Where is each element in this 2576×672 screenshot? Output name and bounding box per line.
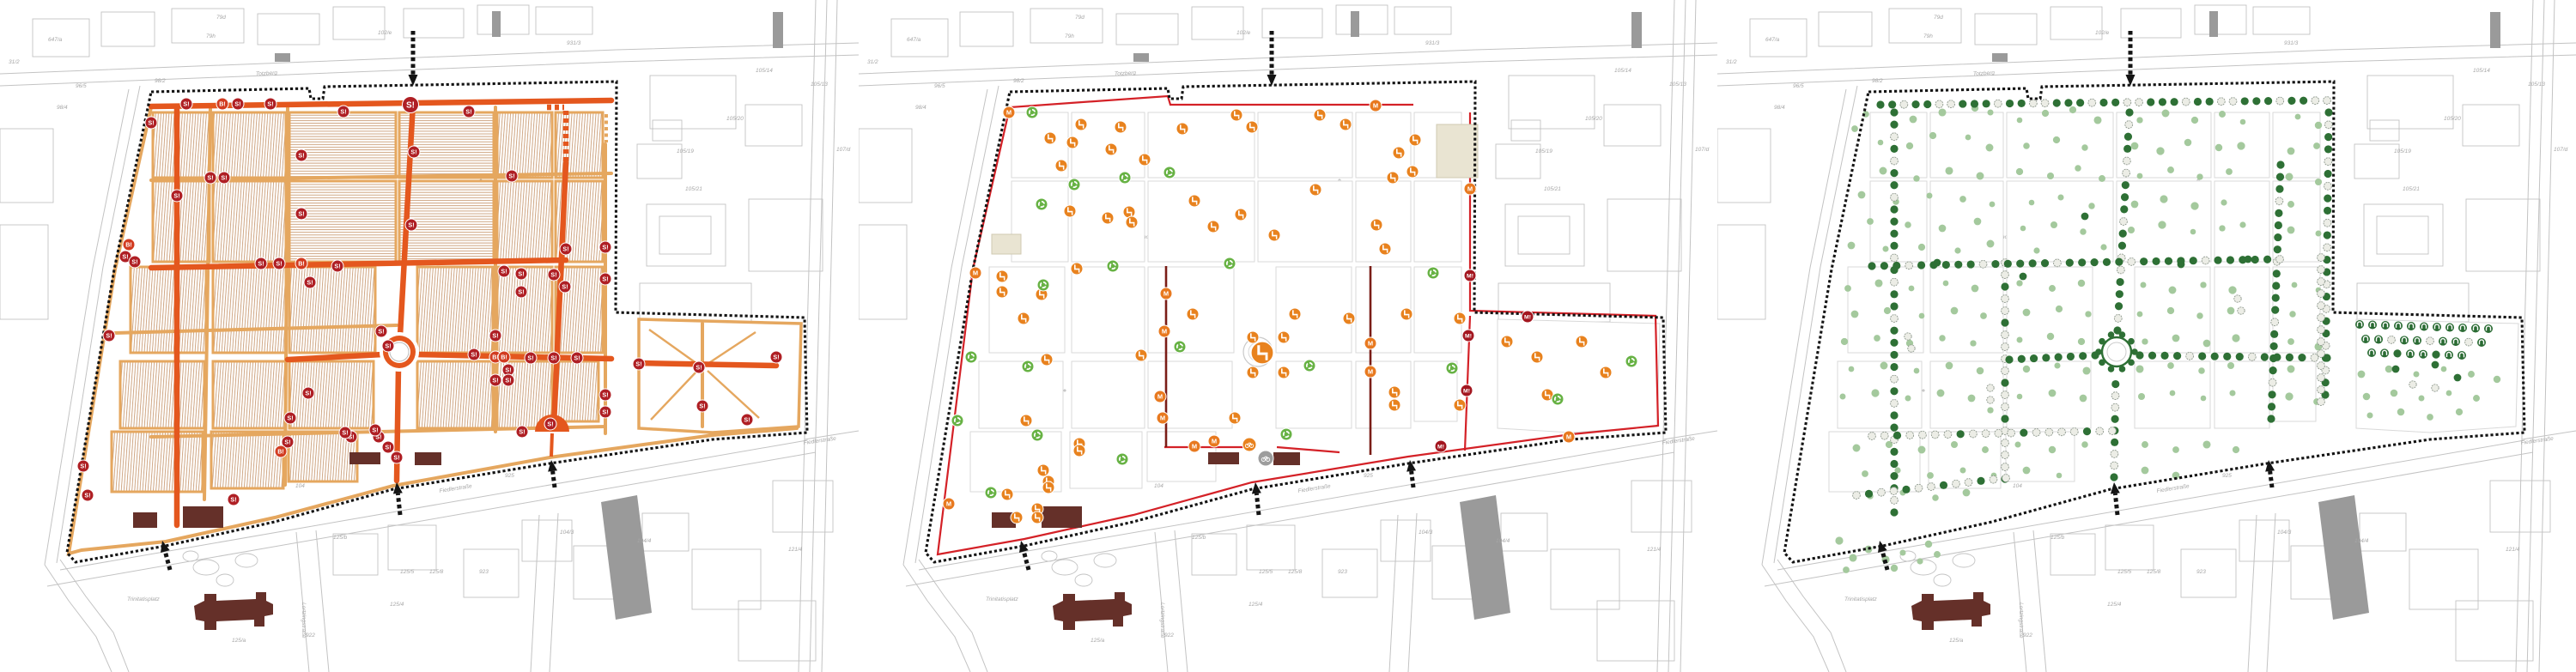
tree-dot-light bbox=[1945, 166, 1953, 174]
map-label: 931/3 bbox=[567, 40, 581, 46]
tree-dot-light bbox=[2226, 168, 2233, 175]
map-label: 105/14 bbox=[2473, 68, 2490, 74]
parcel-outline bbox=[1322, 549, 1377, 597]
tree-dot-pale bbox=[1891, 496, 1899, 504]
tree-dot-light bbox=[2239, 221, 2245, 227]
tree-dot-pale bbox=[2111, 462, 2118, 469]
svg-text:S!: S! bbox=[602, 275, 608, 283]
tree-dot-dark bbox=[1890, 169, 1898, 177]
tree-dot-light bbox=[1867, 218, 1874, 225]
tree-dot-dark bbox=[2324, 231, 2331, 239]
street-line bbox=[316, 530, 329, 672]
tree-dot-dark bbox=[2066, 259, 2074, 267]
map-label: 96/5 bbox=[1793, 83, 1804, 89]
tree-dot-light bbox=[2200, 282, 2206, 288]
tree-dot-dark bbox=[2076, 99, 2084, 106]
tree-dot-pale bbox=[2465, 338, 2473, 346]
waste-marker bbox=[1446, 362, 1458, 374]
annex-field bbox=[639, 319, 801, 433]
grave-field bbox=[213, 181, 286, 262]
tree-dot-light bbox=[1934, 551, 1941, 558]
svg-text:S!: S! bbox=[183, 100, 189, 108]
pond-outline bbox=[1094, 554, 1116, 567]
svg-text:S!: S! bbox=[267, 100, 273, 108]
tree-dot-pale bbox=[1880, 432, 1888, 439]
tree-dot-light bbox=[2167, 307, 2174, 314]
tree-dot-light bbox=[2056, 306, 2063, 312]
tree-dot-dark bbox=[2124, 133, 2132, 141]
tree-dot-light bbox=[2016, 168, 2023, 175]
tree-dot-pale bbox=[2318, 362, 2325, 370]
parcel-outline bbox=[1116, 14, 1178, 45]
grave-field bbox=[556, 112, 603, 178]
tree-dot-light bbox=[2057, 473, 2063, 479]
tree-dot-light bbox=[1927, 193, 1933, 199]
pond-outline bbox=[183, 551, 198, 561]
tree-dot-dark bbox=[2117, 278, 2124, 286]
map-label: 79d bbox=[1075, 15, 1084, 21]
pond-outline bbox=[193, 560, 219, 575]
tree-dot-light bbox=[2138, 393, 2145, 400]
tree-dot-light bbox=[2228, 286, 2236, 294]
tree-dot-pale bbox=[1987, 384, 1994, 391]
map-label: Fiedlerstraße bbox=[439, 483, 472, 494]
tree-dot-pale bbox=[2318, 254, 2325, 262]
tree-dot-light bbox=[2023, 142, 2030, 149]
tree-dot-dark bbox=[1991, 260, 1999, 268]
tree-dot-pale bbox=[1891, 157, 1899, 165]
map-label: 98/2 bbox=[1872, 78, 1883, 84]
svg-text:S!: S! bbox=[221, 174, 227, 182]
tree-dot-dark bbox=[2111, 99, 2119, 106]
svg-text:M: M bbox=[1368, 368, 1373, 376]
tree-dot-light bbox=[1880, 167, 1887, 175]
tree-dot-light bbox=[2419, 396, 2425, 402]
map-label: 125/b bbox=[2050, 535, 2065, 541]
parcel-outline bbox=[1607, 199, 1681, 271]
map-label: 104/3 bbox=[2277, 530, 2292, 536]
tree-dot-light bbox=[1965, 135, 1971, 141]
tree-dot-pale bbox=[2324, 158, 2332, 166]
map-label: 923 bbox=[1338, 569, 1347, 575]
map-label: 98/2 bbox=[1013, 78, 1024, 84]
tree-dot-pale bbox=[1905, 262, 1913, 269]
map-label: 107/d bbox=[836, 147, 851, 153]
grave-field bbox=[289, 267, 375, 353]
map-label: 98/2 bbox=[155, 78, 166, 84]
building bbox=[349, 452, 380, 464]
parcel-outline bbox=[2253, 7, 2310, 34]
parcel-outline bbox=[101, 12, 155, 46]
grave-field bbox=[2215, 361, 2269, 428]
tree-dot-dark bbox=[1890, 181, 1898, 189]
tree-dot-dark bbox=[2269, 366, 2276, 374]
tree-dot-light bbox=[2050, 221, 2057, 228]
tree-dot-dark bbox=[2123, 145, 2131, 153]
tree-dot-light bbox=[2136, 365, 2143, 372]
svg-text:S!: S! bbox=[602, 409, 608, 416]
tree-dot-dark bbox=[2115, 258, 2123, 266]
tree-dot-light bbox=[2033, 247, 2039, 253]
tree-dot-pale bbox=[2388, 336, 2396, 343]
grave-fields bbox=[970, 112, 1660, 492]
tree-dot-dark bbox=[2206, 98, 2214, 106]
grave-field bbox=[153, 112, 210, 178]
map-label: Totzberg bbox=[1973, 70, 1996, 77]
parcel-outline bbox=[1496, 144, 1540, 179]
tree-dot-pale bbox=[1965, 479, 1972, 487]
tree-dot-light bbox=[1874, 279, 1882, 287]
street-line bbox=[2267, 513, 2275, 672]
tree-dot-pale bbox=[2238, 307, 2245, 314]
pond-outline bbox=[1953, 554, 1975, 567]
svg-text:S!: S! bbox=[148, 119, 154, 127]
tree-dot-light bbox=[2468, 371, 2475, 378]
grave-field bbox=[131, 267, 206, 353]
tree-dot-light bbox=[1858, 191, 1866, 199]
tree-dot-light bbox=[2131, 142, 2139, 150]
tree-dot-dark bbox=[2111, 415, 2119, 423]
map-label: 121/4 bbox=[1647, 547, 1662, 553]
parcel-outline bbox=[522, 520, 572, 561]
svg-text:M: M bbox=[1373, 102, 1378, 110]
tree-dot-light bbox=[2142, 338, 2148, 344]
tree-dot-dark bbox=[2147, 98, 2154, 106]
svg-text:M: M bbox=[1160, 415, 1165, 422]
tree-dot-dark bbox=[2152, 257, 2160, 265]
tree-dot-pale bbox=[2276, 256, 2284, 263]
grave-field bbox=[289, 112, 396, 178]
svg-text:M: M bbox=[1467, 185, 1473, 193]
tree-dot-pale bbox=[2070, 428, 2078, 436]
tree-dot-light bbox=[2414, 372, 2420, 378]
tree-dot-dark bbox=[1942, 261, 1950, 269]
tree-dot-light bbox=[1954, 247, 1960, 253]
tree-dot-pale bbox=[2276, 97, 2284, 105]
tree-dot-dark bbox=[2251, 256, 2259, 263]
tree-dot-dark bbox=[1865, 490, 1873, 498]
tree-dot-light bbox=[2075, 165, 2081, 171]
tree-dot-pale bbox=[1905, 333, 1911, 340]
map-label: 102/e bbox=[2095, 30, 2110, 36]
svg-text:S!: S! bbox=[550, 354, 556, 362]
street-line bbox=[1389, 515, 1398, 672]
tree-dot-light bbox=[2287, 366, 2295, 373]
svg-text:S!: S! bbox=[378, 328, 384, 336]
tree-dot-light bbox=[2160, 195, 2167, 203]
tree-dot-dark bbox=[2016, 259, 2024, 267]
map-label: 79h bbox=[1923, 33, 1933, 39]
svg-text:S!: S! bbox=[602, 244, 608, 251]
svg-text:S!: S! bbox=[173, 192, 179, 200]
tree-dot-light bbox=[2017, 337, 2023, 343]
tree-dot-light bbox=[2219, 111, 2226, 118]
grave-field bbox=[211, 432, 283, 488]
tree-dot-dark bbox=[2454, 374, 2462, 382]
tree-dot-dark bbox=[2227, 256, 2234, 263]
svg-text:S!: S! bbox=[562, 283, 568, 291]
tree-dot-dark bbox=[2001, 415, 2008, 422]
tree-dot-light bbox=[2287, 148, 2295, 155]
tree-dot-light bbox=[2286, 173, 2293, 181]
building bbox=[415, 452, 441, 465]
tree-dot-light bbox=[2385, 366, 2393, 373]
grave-field bbox=[1148, 181, 1255, 262]
tree-dot-light bbox=[1905, 221, 1911, 228]
tree-dot-dark bbox=[2090, 258, 2098, 266]
tree-dot-pale bbox=[2002, 475, 2010, 482]
tree-dot-light bbox=[2023, 366, 2030, 372]
tree-dot-light bbox=[1849, 366, 1855, 372]
tree-dot-dark bbox=[2268, 390, 2275, 398]
parcel-outline bbox=[2377, 216, 2428, 254]
parcel-outline bbox=[1247, 525, 1295, 570]
parcel-outline bbox=[0, 225, 48, 319]
map-label: 104/4 bbox=[1496, 538, 1510, 544]
parcel-outline bbox=[1498, 283, 1610, 322]
svg-text:S!: S! bbox=[385, 342, 391, 350]
map-label: 98/4 bbox=[915, 105, 927, 111]
tree-dot-light bbox=[2215, 144, 2222, 151]
map-label: Fiedlerstraße bbox=[2156, 483, 2190, 494]
tree-dot-dark bbox=[2115, 302, 2123, 310]
tree-dot-light bbox=[1968, 395, 1976, 403]
tree-dot-dark bbox=[2264, 97, 2272, 105]
tree-dot-dark bbox=[2121, 193, 2129, 201]
parcel-outline bbox=[2367, 76, 2453, 129]
tree-dot-light bbox=[2203, 340, 2211, 348]
map-label: 31/2 bbox=[9, 59, 20, 65]
grave-field bbox=[1147, 432, 1216, 481]
parcel-outline bbox=[1505, 204, 1584, 266]
tree-dot-light bbox=[2057, 194, 2063, 200]
tree-dot-dark bbox=[1868, 262, 1875, 269]
tree-dot-pale bbox=[2318, 302, 2325, 310]
grave-field bbox=[112, 432, 203, 492]
tree-dot-light bbox=[2190, 202, 2198, 209]
svg-text:S!: S! bbox=[106, 332, 112, 340]
grave-field bbox=[213, 267, 286, 353]
map-label: 125/8 bbox=[429, 569, 444, 575]
tree-dot-pale bbox=[1982, 430, 1990, 438]
svg-text:B!: B! bbox=[298, 260, 305, 268]
map-label: Totzberg bbox=[256, 70, 278, 77]
tree-dot-dark bbox=[2083, 427, 2091, 435]
tree-dot-pale bbox=[2002, 331, 2009, 339]
tree-dot-dark bbox=[1977, 477, 1984, 485]
tree-dot-light bbox=[2020, 226, 2026, 232]
waste-marker bbox=[1026, 106, 1038, 118]
tree-dot-pale bbox=[2275, 197, 2283, 205]
svg-text:M: M bbox=[946, 500, 951, 508]
svg-text:S!: S! bbox=[518, 288, 524, 296]
map-label: 104/3 bbox=[560, 530, 574, 536]
parcel-outline bbox=[477, 5, 529, 34]
tree-dot-pale bbox=[2117, 266, 2124, 274]
svg-text:S!: S! bbox=[410, 148, 416, 156]
tree-dot-dark bbox=[1890, 108, 1898, 116]
grey-building bbox=[1631, 12, 1642, 48]
map-label: 79d bbox=[216, 15, 226, 21]
svg-text:S!: S! bbox=[699, 403, 705, 410]
tree-dot-dark bbox=[1967, 260, 1975, 268]
tree-dot-light bbox=[1843, 566, 1850, 573]
tree-dot-pale bbox=[1900, 100, 1908, 108]
tree-dot-pale bbox=[2318, 386, 2325, 394]
tree-dot-dark bbox=[2041, 259, 2049, 267]
parcel-outline bbox=[2357, 283, 2469, 322]
street-line bbox=[60, 560, 129, 672]
tree-dot-light bbox=[2141, 282, 2147, 288]
map-label: 105/13 bbox=[1669, 82, 1686, 88]
tree-dot-dark bbox=[1890, 290, 1898, 298]
tree-dot-dark bbox=[1876, 100, 1884, 108]
tree-dot-light bbox=[2221, 199, 2227, 205]
tree-dot-light bbox=[2363, 393, 2371, 401]
tree-dot-dark bbox=[2111, 380, 2119, 388]
parcel-outline bbox=[1394, 7, 1451, 34]
map-label: 105/20 bbox=[726, 116, 744, 122]
grey-building bbox=[1992, 53, 2008, 62]
entrance-arrow-stem bbox=[2115, 493, 2117, 515]
waste-marker bbox=[951, 415, 963, 427]
tree-dot-dark bbox=[1929, 261, 1937, 269]
grave-field bbox=[1829, 432, 1920, 492]
map-label: 125/a bbox=[1091, 638, 1105, 644]
tree-dot-pale bbox=[2002, 307, 2009, 315]
tree-dot-light bbox=[1899, 549, 1905, 555]
grey-building bbox=[601, 495, 652, 620]
tree-dot-light bbox=[2285, 392, 2293, 400]
parcel-outline bbox=[2456, 601, 2533, 661]
tree-dot-light bbox=[2227, 362, 2234, 369]
survey-dot bbox=[1923, 390, 1924, 391]
street-line bbox=[1717, 55, 2576, 86]
tree-dot-dark bbox=[2324, 133, 2332, 141]
grave-field bbox=[289, 181, 396, 262]
grave-field bbox=[289, 361, 374, 428]
tree-dot-pale bbox=[2318, 290, 2325, 298]
parcel-outline bbox=[1819, 12, 1872, 46]
tree-dot-dark bbox=[2018, 355, 2026, 363]
svg-text:M: M bbox=[1157, 393, 1163, 401]
tree-dot-pale bbox=[1953, 480, 1960, 487]
map-label: 105/20 bbox=[2444, 116, 2461, 122]
tree-dot-light bbox=[1849, 554, 1856, 561]
tree-dot-pale bbox=[1990, 475, 1997, 483]
parcel-outline bbox=[859, 225, 907, 319]
map-label: 105/21 bbox=[685, 186, 702, 192]
tree-dot-dark bbox=[2324, 207, 2331, 215]
tree-dot-light bbox=[2081, 144, 2087, 150]
tree-dot-dark bbox=[2198, 352, 2206, 360]
grave-field bbox=[1870, 181, 1927, 262]
tree-dot-dark bbox=[2273, 269, 2281, 277]
svg-text:M: M bbox=[1163, 290, 1169, 298]
grey-building bbox=[2209, 11, 2218, 37]
tree-dot-pale bbox=[2234, 295, 2241, 302]
tree-dot-dark bbox=[1890, 363, 1898, 371]
building bbox=[183, 506, 223, 528]
map-label: 125/4 bbox=[2107, 602, 2122, 608]
svg-text:S!: S! bbox=[602, 391, 608, 399]
svg-text:S!: S! bbox=[773, 354, 779, 361]
survey-dot bbox=[1064, 390, 1066, 391]
parcel-outline bbox=[960, 12, 1013, 46]
tree-dot-dark bbox=[1880, 262, 1888, 269]
tree-dot-light bbox=[2078, 280, 2085, 287]
map-label: 647/a bbox=[1765, 37, 1780, 43]
tree-dot-dark bbox=[1890, 242, 1898, 250]
tree-dot-light bbox=[1840, 394, 1846, 400]
church-footprint bbox=[194, 592, 273, 630]
map-label: 121/4 bbox=[2506, 547, 2520, 553]
tree-dot-pale bbox=[2029, 100, 2037, 107]
tree-dot-dark bbox=[2214, 257, 2221, 264]
tree-dot-dark bbox=[1959, 100, 1966, 107]
tree-dot-light bbox=[2080, 228, 2086, 234]
tree-dot-pale bbox=[2318, 314, 2325, 322]
map-label: 105/20 bbox=[1585, 116, 1602, 122]
parcel-outline bbox=[1518, 216, 1570, 254]
parcel-outline bbox=[2181, 549, 2236, 597]
street-line bbox=[1175, 530, 1188, 672]
grave-field bbox=[1148, 112, 1255, 178]
svg-text:S!: S! bbox=[334, 263, 340, 270]
tree-dot-light bbox=[2172, 335, 2180, 342]
svg-text:M: M bbox=[1006, 109, 1012, 117]
waste-marker bbox=[1280, 428, 1292, 440]
waste-marker bbox=[1303, 360, 1315, 372]
tree-dot-light bbox=[2427, 414, 2433, 421]
triptych-site-maps: 79d79h102/e98/296/5647/a31/298/4931/3Tot… bbox=[0, 0, 2576, 672]
tree-dot-dark bbox=[2004, 260, 2012, 268]
tree-dot-pale bbox=[2002, 295, 2009, 303]
street-line bbox=[2033, 530, 2046, 672]
tree-dot-dark bbox=[2125, 108, 2133, 116]
svg-text:S!: S! bbox=[84, 492, 90, 499]
map-label: 125/5 bbox=[1259, 569, 1273, 575]
svg-text:M: M bbox=[1368, 340, 1373, 348]
tree-dot-dark bbox=[2274, 245, 2281, 253]
tree-dot-pale bbox=[1853, 492, 1861, 499]
tree-dot-light bbox=[2042, 110, 2049, 117]
tree-dot-dark bbox=[1957, 430, 1965, 438]
street-line bbox=[1777, 560, 1846, 672]
tree-dot-light bbox=[1841, 338, 1848, 345]
tree-dot-dark bbox=[2118, 242, 2126, 250]
tree-dot-pale bbox=[2324, 244, 2331, 251]
grave-field bbox=[213, 112, 286, 178]
grey-building bbox=[275, 53, 290, 62]
tree-dot-dark bbox=[2271, 306, 2279, 314]
tree-dot-pale bbox=[2324, 182, 2332, 190]
svg-text:S!: S! bbox=[501, 268, 507, 275]
map-label: 107/d bbox=[1695, 147, 1710, 153]
tree-dot-light bbox=[1882, 245, 1888, 251]
parcel-outline bbox=[2239, 520, 2289, 561]
grey-building bbox=[492, 11, 501, 37]
tree-dot-dark bbox=[2194, 98, 2202, 106]
pond-outline bbox=[216, 574, 234, 586]
tree-dot-dark bbox=[1890, 205, 1898, 213]
map-label: 125/5 bbox=[2117, 569, 2132, 575]
svg-text:S!: S! bbox=[305, 390, 311, 397]
tree-dot-light bbox=[2196, 173, 2202, 179]
tree-dot-pale bbox=[1891, 278, 1899, 286]
grave-field bbox=[213, 361, 286, 428]
tree-dot-pale bbox=[1928, 483, 1935, 491]
